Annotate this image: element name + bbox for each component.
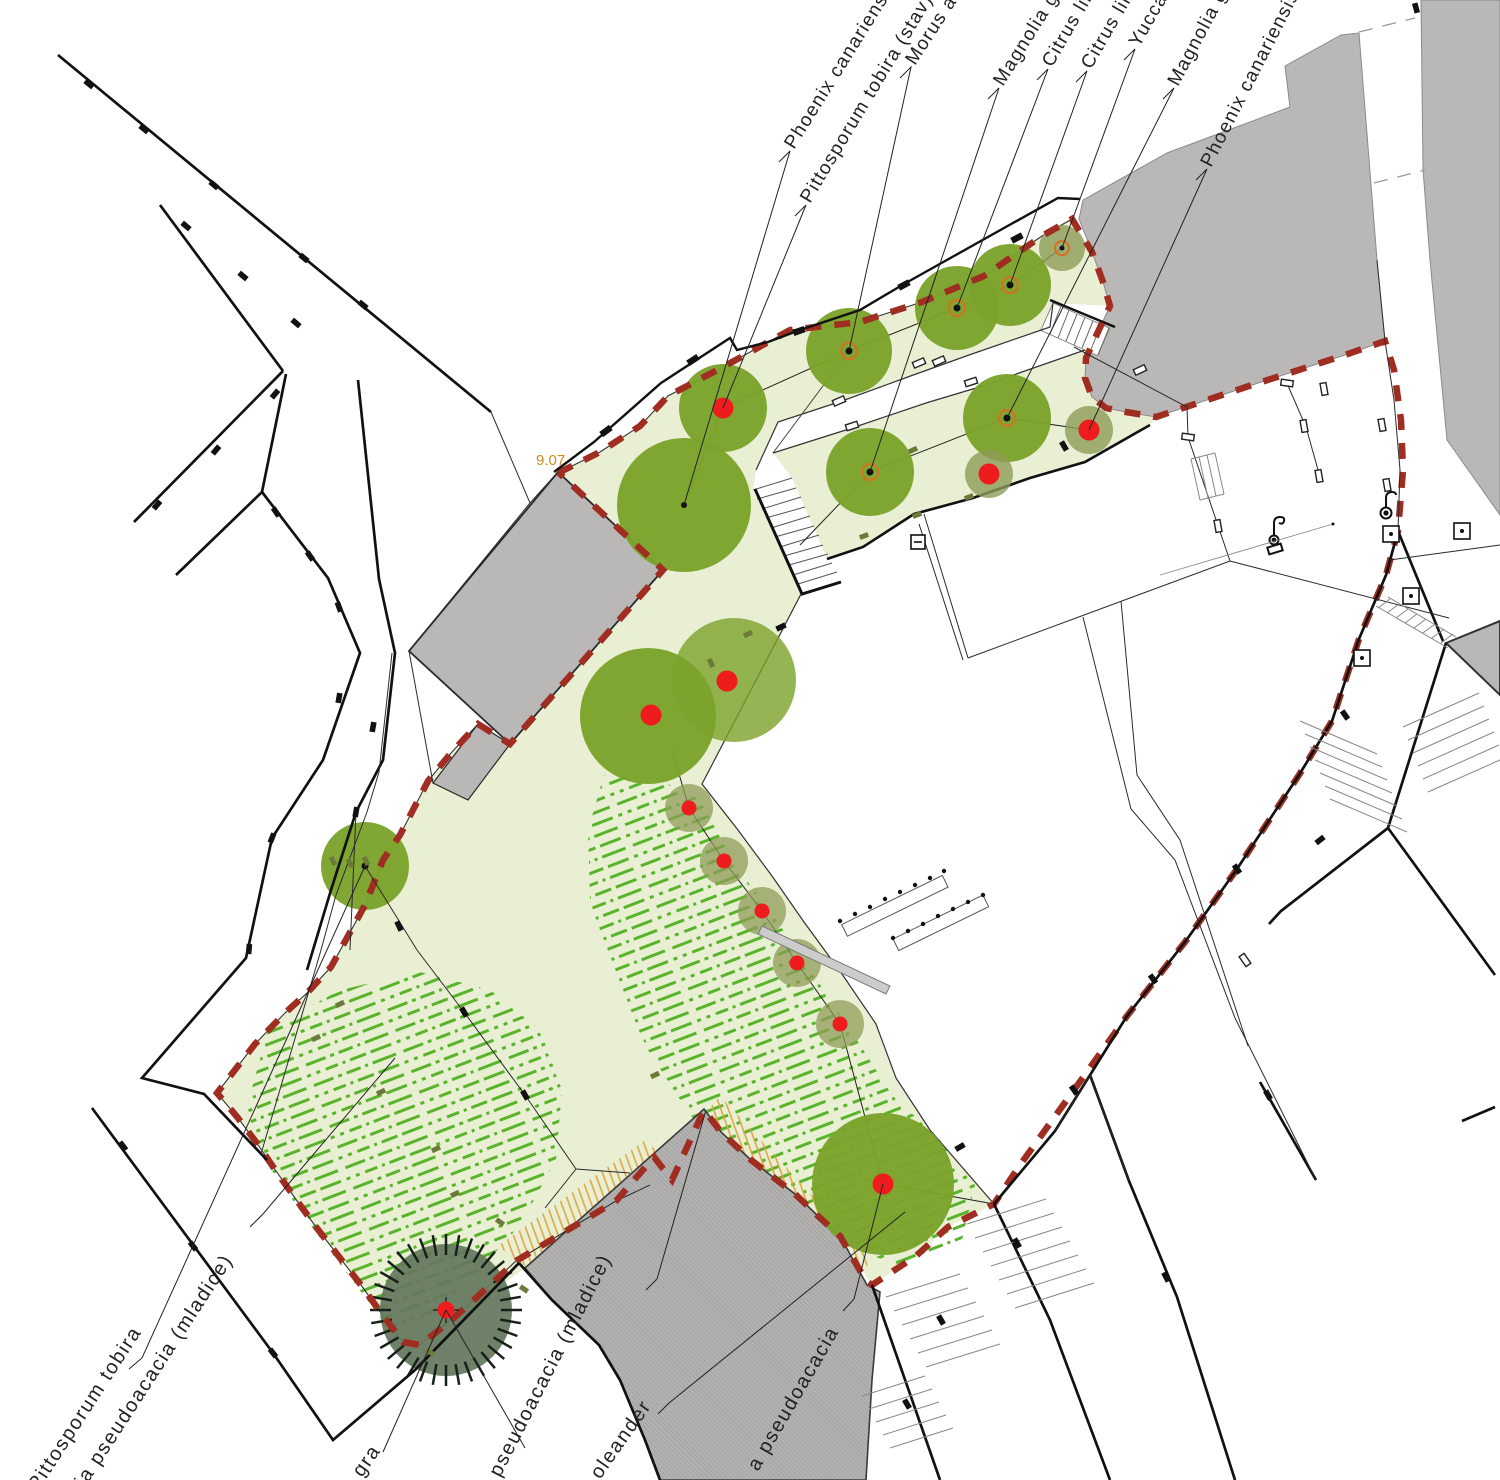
svg-text:9.07: 9.07 [536,452,565,469]
